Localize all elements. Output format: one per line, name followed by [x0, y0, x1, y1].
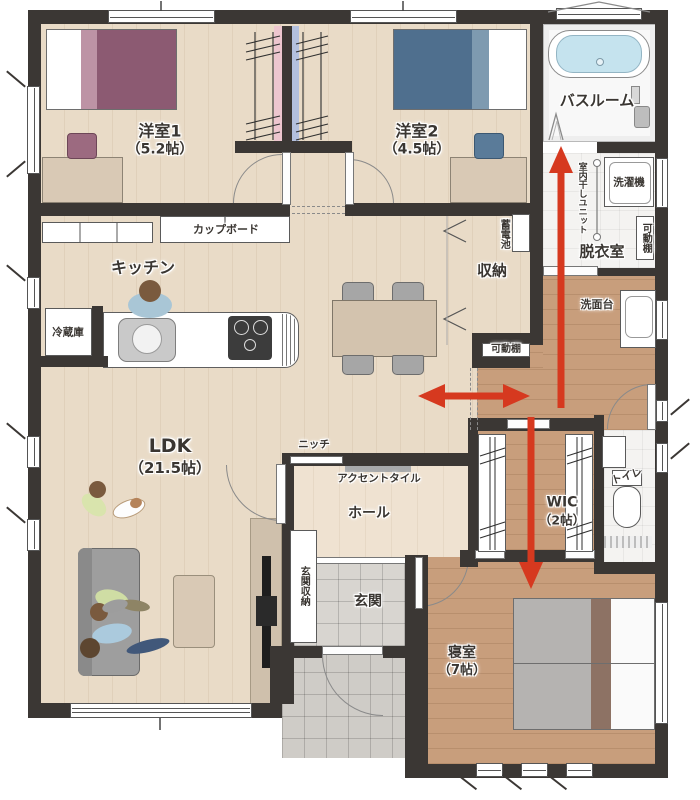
room-label-kitchen: キッチン — [111, 258, 175, 278]
window — [656, 158, 668, 208]
label-washstand: 洗面台 — [581, 298, 614, 312]
window-tick — [6, 507, 26, 524]
bedroom-size: （7帖） — [438, 663, 486, 679]
accent-tile-strip — [345, 466, 411, 472]
room-label-ldk: LDK （21.5帖） — [129, 435, 211, 478]
opening-dashed — [292, 213, 345, 214]
window-tick — [670, 399, 690, 416]
window — [656, 400, 668, 422]
room-label-hall: ホール — [348, 505, 390, 523]
door-leaf-bedroom — [415, 557, 423, 609]
room-label-entrance: 玄関 — [354, 593, 382, 611]
wall — [28, 203, 290, 216]
closet-accent-blue — [292, 26, 299, 141]
room-label-bedroom: 寝室 （7帖） — [438, 645, 486, 679]
label-washing-machine: 洗濯機 — [613, 176, 645, 189]
person-child-head — [89, 481, 106, 498]
dining-chair — [342, 282, 374, 302]
room1-name: 洋室1 — [127, 121, 194, 141]
room-label-wic: WIC （2帖） — [539, 494, 585, 527]
window-tick — [6, 423, 26, 440]
wall — [383, 646, 405, 658]
window — [521, 763, 548, 777]
room-label-bathroom: バスルーム — [560, 92, 635, 111]
bathtub-water — [556, 35, 642, 73]
wic-closet-right — [565, 434, 593, 552]
wall — [235, 141, 352, 153]
wall — [598, 268, 656, 276]
label-movable-shelf-center: 可動棚 — [491, 344, 521, 357]
dining-chair — [392, 282, 424, 302]
room-label-storage: 収納 — [477, 262, 507, 281]
kitchen-island-edge — [282, 314, 297, 366]
coffee-table — [173, 575, 215, 648]
room2-name: 洋室2 — [384, 121, 451, 141]
bed-master-split — [513, 663, 655, 664]
opening-dashed — [470, 368, 471, 430]
wall — [294, 646, 322, 658]
floor-plan: 洋室1 （5.2帖） 洋室2 （4.5帖） バスルーム 脱衣室 洗濯機 可動棚 … — [0, 0, 700, 800]
sliding-door-wic — [507, 419, 550, 429]
label-movable-shelf-right: 可動棚 — [639, 223, 652, 253]
window — [566, 763, 593, 777]
wall — [92, 306, 103, 367]
window-tick — [6, 161, 26, 178]
door-leaf-room1 — [282, 152, 291, 205]
person-sofa2-head — [80, 638, 100, 658]
window — [656, 443, 668, 473]
bedroom-name: 寝室 — [438, 645, 486, 663]
label-refrigerator: 冷蔵庫 — [52, 326, 84, 339]
stove-burner — [244, 339, 256, 351]
kitchen-sink-bowl — [132, 324, 162, 354]
label-indoor-drying-unit: 室内干しユニット — [575, 162, 586, 234]
floor-passage-n — [530, 345, 543, 368]
stove-burner — [253, 320, 268, 335]
room2-size: （4.5帖） — [384, 141, 451, 159]
closet-accent-pink — [274, 26, 282, 141]
room-label-room2: 洋室2 （4.5帖） — [384, 121, 451, 159]
opening-dashed — [292, 206, 345, 207]
stove-burner — [234, 320, 249, 335]
dining-table — [332, 300, 437, 357]
toilet-bowl — [613, 486, 641, 528]
wic-closet-left — [478, 434, 506, 552]
bath-stool — [634, 106, 650, 128]
bed-room1-pillow — [81, 30, 97, 109]
bed-master-runner — [591, 599, 611, 729]
window — [656, 300, 668, 340]
door-leaf-toilet — [647, 384, 656, 430]
label-accent-tile: アクセントタイル — [337, 472, 420, 485]
sliding-door-laundry — [543, 266, 598, 276]
storage-battery-box — [512, 214, 530, 252]
wall — [468, 431, 478, 551]
label-entrance-storage: 玄関収納 — [297, 566, 310, 606]
wall — [282, 26, 292, 141]
toilet-hand-basin — [602, 436, 626, 468]
bed-room2-pillow — [472, 30, 489, 109]
door-leaf-room2 — [345, 152, 354, 205]
desk-room1 — [42, 157, 123, 203]
window — [27, 86, 40, 174]
ldk-size: （21.5帖） — [129, 459, 211, 478]
window — [27, 277, 40, 309]
window-living-sliding — [70, 703, 252, 718]
wall — [345, 203, 530, 216]
dining-chair — [342, 355, 374, 375]
window-tick — [6, 265, 26, 282]
opening-dashed — [477, 368, 478, 430]
vanity-bowl — [625, 296, 653, 338]
wall — [270, 646, 282, 714]
dining-chair — [392, 355, 424, 375]
wall — [597, 142, 656, 153]
label-cupboard: カップボード — [193, 223, 259, 237]
bed-room2-duvet — [394, 30, 472, 109]
window-tick — [6, 71, 26, 88]
window — [476, 763, 503, 777]
toilet-mat — [604, 536, 652, 548]
window — [350, 10, 457, 23]
wic-name: WIC — [539, 494, 585, 512]
chair-room2 — [474, 133, 504, 159]
window — [27, 436, 40, 468]
wic-size: （2帖） — [539, 512, 585, 528]
room1-size: （5.2帖） — [127, 141, 194, 159]
label-niche: ニッチ — [298, 438, 330, 451]
ldk-name: LDK — [129, 435, 211, 459]
window-bedroom — [655, 602, 668, 724]
door-leaf-hall — [276, 464, 286, 524]
room-label-laundry: 脱衣室 — [579, 243, 624, 262]
window — [556, 8, 642, 20]
label-storage-battery: 蓄電池 — [497, 219, 510, 249]
kitchen-counter-niche — [42, 222, 153, 243]
wall — [594, 562, 668, 574]
window — [108, 10, 215, 23]
entrance-step — [315, 557, 407, 564]
chair-room1 — [67, 133, 97, 159]
entrance-door — [322, 646, 383, 655]
window — [27, 519, 40, 551]
bed-room1-duvet — [97, 30, 176, 109]
bed-master-pillows — [611, 599, 654, 729]
person-cooking-head — [139, 280, 161, 302]
desk-room2 — [450, 157, 527, 203]
tv-stand — [256, 596, 277, 626]
niche-inset — [290, 456, 343, 464]
wall — [472, 333, 482, 368]
room-label-room1: 洋室1 （5.2帖） — [127, 121, 194, 159]
wall — [530, 24, 543, 345]
bathtub-drain — [596, 58, 604, 66]
window-tick — [670, 443, 690, 460]
